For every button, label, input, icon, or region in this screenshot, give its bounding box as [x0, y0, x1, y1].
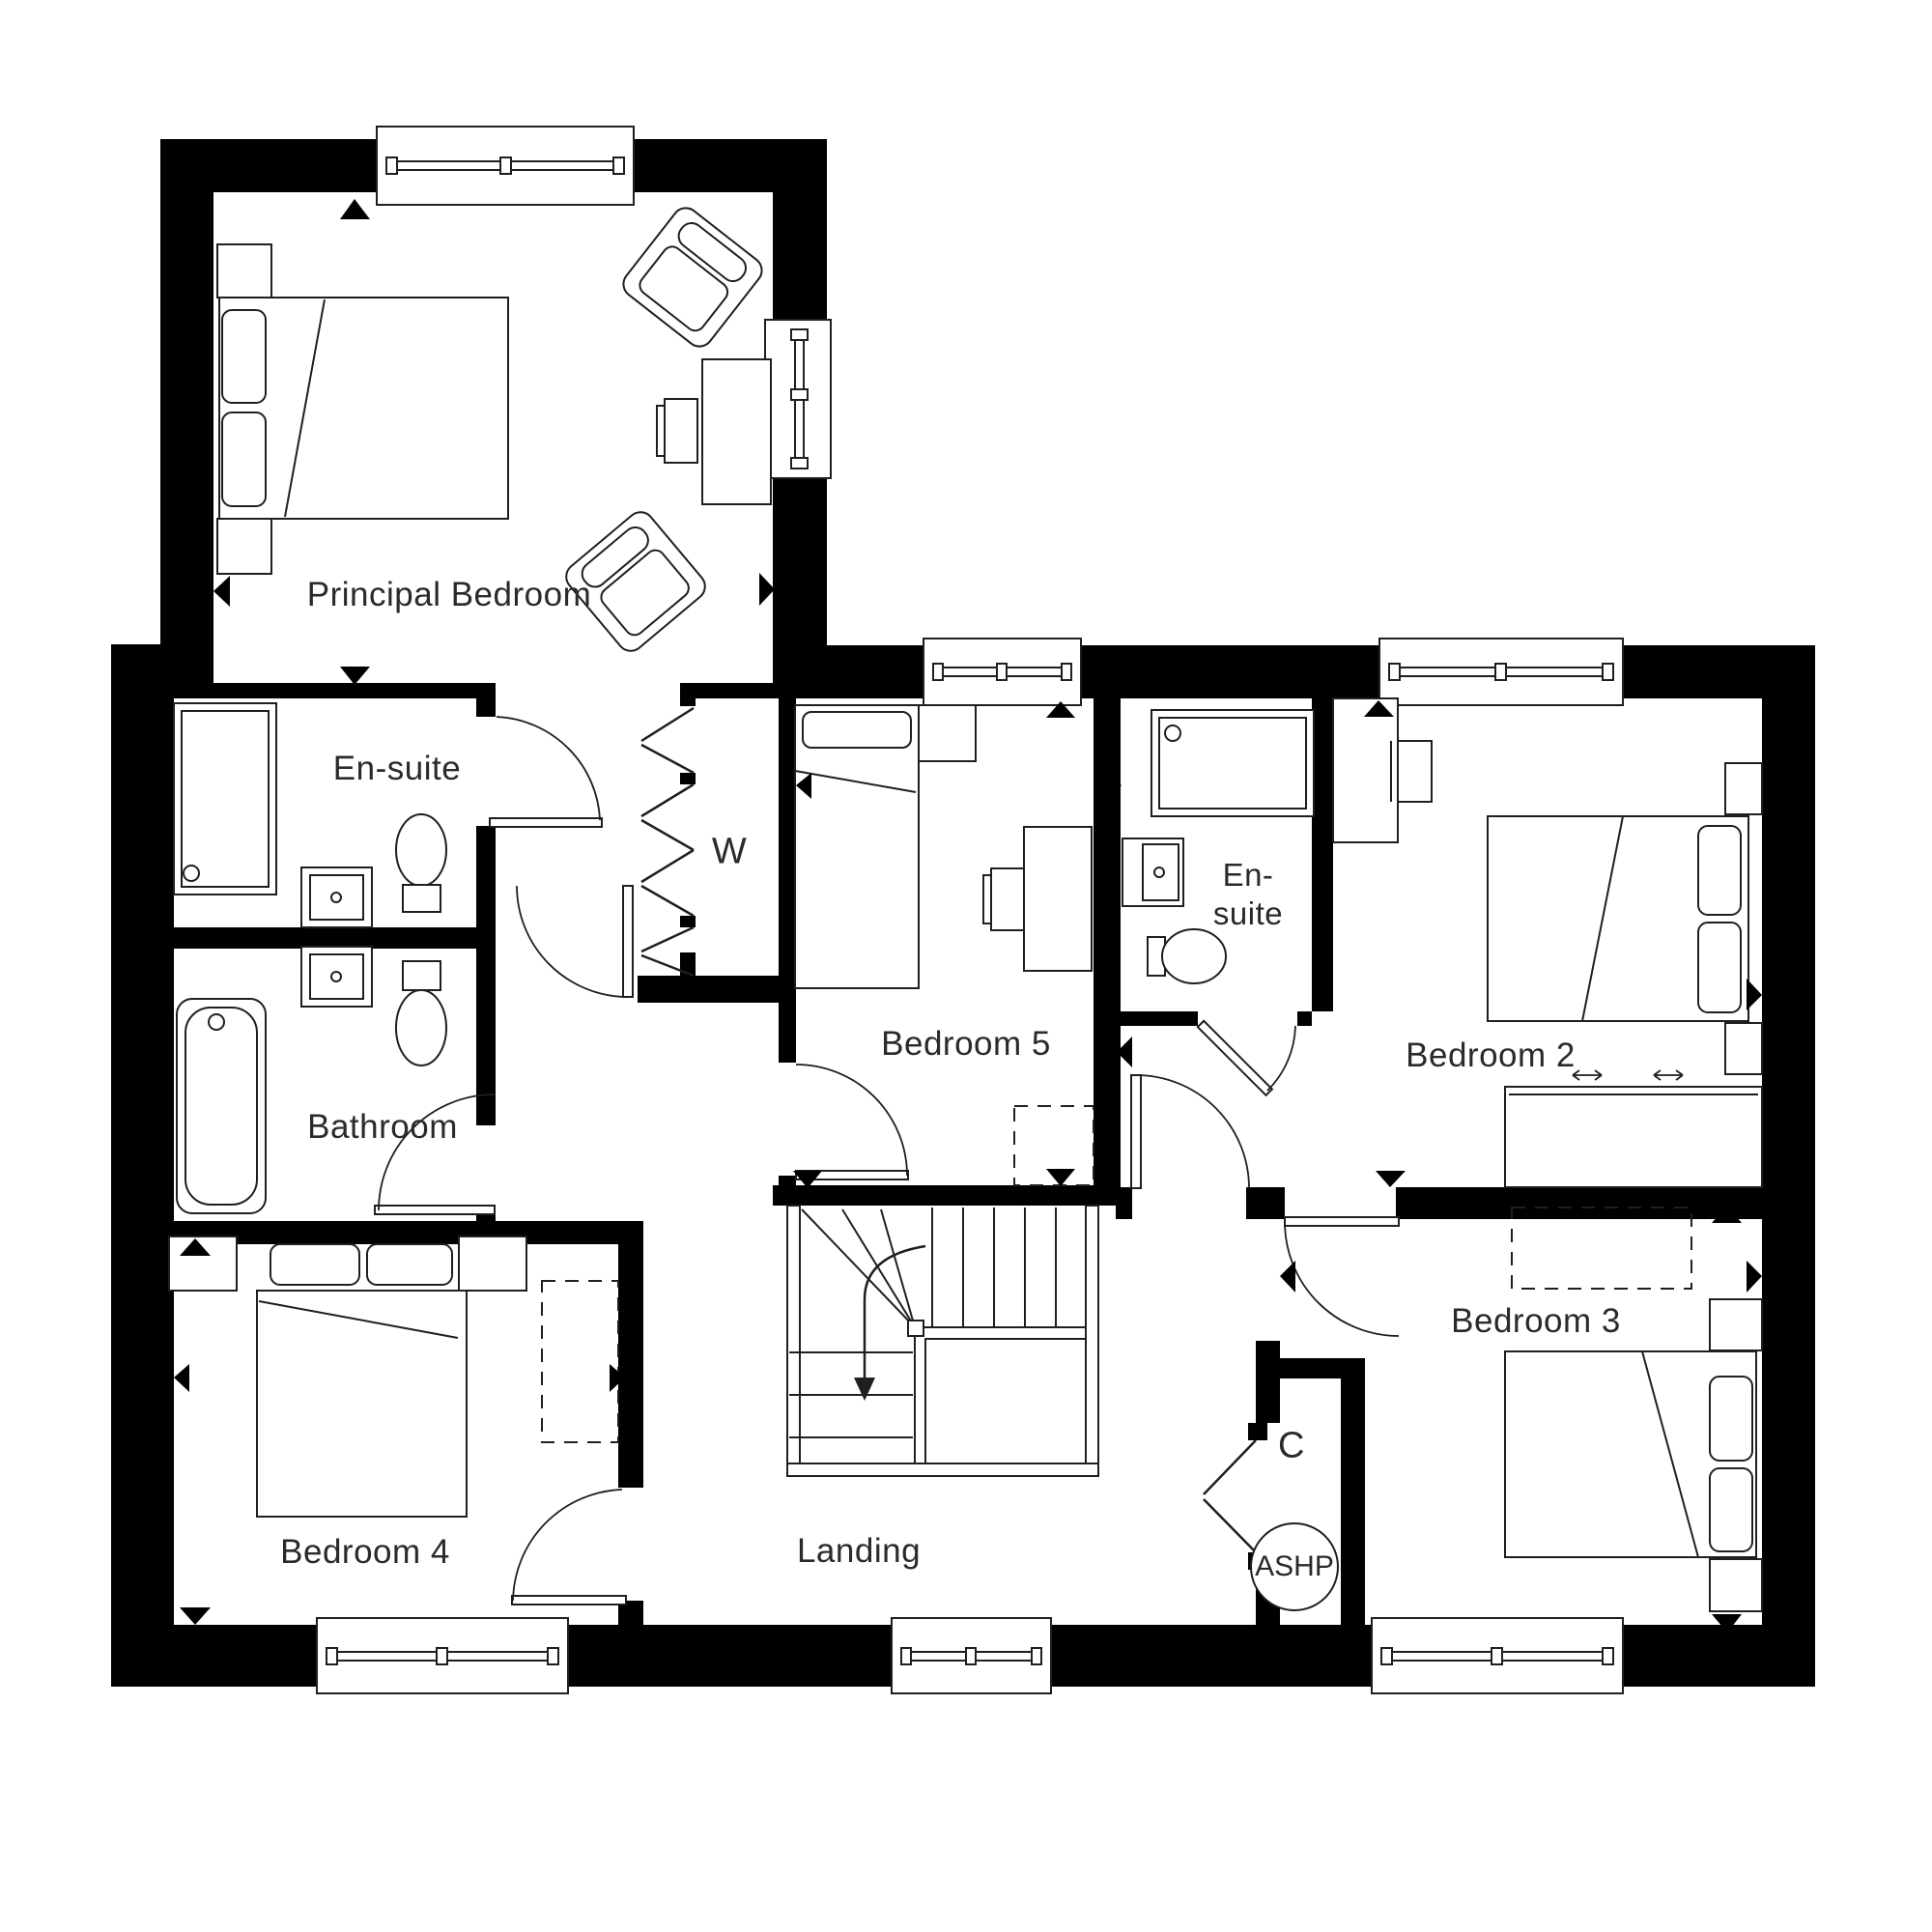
window-bedroom3 — [1372, 1618, 1623, 1693]
pillow — [367, 1244, 452, 1285]
bedside-unit — [169, 1236, 237, 1291]
label-ensuite2-line1: En- — [1223, 857, 1274, 894]
bedroom2-bed — [1488, 763, 1762, 1074]
label-bedroom5: Bedroom 5 — [881, 1025, 1051, 1064]
door-wardrobe-bifold — [641, 708, 694, 976]
bathroom-bath — [177, 999, 266, 1213]
bedside-unit — [1725, 1023, 1762, 1074]
window-bedroom2 — [1379, 639, 1623, 705]
toilet-bowl — [1162, 929, 1226, 983]
door-ensuite1 — [490, 717, 602, 827]
bedroom4-future-wardrobe — [542, 1281, 618, 1442]
sliding-door-arrows — [1573, 1070, 1683, 1080]
floor-plan-drawing — [0, 0, 1932, 1932]
marker-left — [174, 1364, 189, 1392]
mattress — [257, 1291, 467, 1517]
basin-tap — [331, 893, 341, 902]
window-principal-top — [377, 127, 634, 205]
shower-drain — [184, 866, 199, 881]
ensuite2-basin — [1122, 838, 1183, 906]
marker-up — [340, 199, 370, 219]
ensuite2-shower — [1151, 710, 1314, 816]
pillow — [1698, 826, 1741, 915]
door-cupboard-bifold — [1204, 1440, 1256, 1552]
bedside-unit — [217, 519, 271, 574]
marker-down — [340, 667, 370, 685]
bedroom3-future-wardrobe — [1512, 1207, 1691, 1289]
bedside-unit — [1725, 763, 1762, 814]
desk-chair — [991, 868, 1024, 930]
label-wardrobe: W — [712, 832, 747, 873]
window-landing — [892, 1618, 1051, 1693]
label-bathroom: Bathroom — [307, 1108, 458, 1147]
label-principal-bedroom: Principal Bedroom — [307, 576, 591, 614]
pillow — [1698, 923, 1741, 1012]
label-landing: Landing — [797, 1532, 921, 1571]
marker-right — [1747, 979, 1762, 1010]
label-bedroom4: Bedroom 4 — [280, 1533, 450, 1572]
window-bedroom4 — [317, 1618, 568, 1693]
label-ashp: ASHP — [1255, 1550, 1334, 1583]
label-bedroom3: Bedroom 3 — [1451, 1302, 1621, 1341]
bedroom4-bed — [169, 1236, 526, 1517]
bedroom5-bed — [795, 705, 976, 988]
ensuite2-toilet — [1148, 929, 1226, 983]
bedside-unit — [217, 244, 271, 298]
marker-down — [1046, 1169, 1075, 1186]
pillow — [222, 412, 266, 506]
principal-armchair-1 — [618, 203, 767, 352]
pillow — [1710, 1468, 1752, 1551]
label-bedroom2: Bedroom 2 — [1406, 1037, 1576, 1075]
bathroom-toilet — [396, 961, 446, 1065]
principal-bed — [217, 244, 508, 574]
desk-chair-back — [983, 875, 991, 923]
bedroom2-wardrobe — [1505, 1070, 1762, 1187]
floor-plan: Principal Bedroom En-suite W Bedroom 5 E… — [0, 0, 1932, 1932]
pillow — [270, 1244, 359, 1285]
bedroom2-desk — [1333, 698, 1432, 842]
marker-left — [1280, 1261, 1295, 1293]
marker-right — [759, 573, 775, 606]
window-bedroom5 — [923, 639, 1081, 705]
door-principal-suite — [517, 886, 633, 997]
pillow — [222, 310, 266, 403]
pillow — [1710, 1377, 1752, 1461]
door-bedroom2 — [1131, 1075, 1249, 1188]
label-cupboard: C — [1278, 1426, 1305, 1467]
door-bedroom4 — [512, 1490, 626, 1605]
ensuite1-basin — [301, 867, 372, 927]
desk-chair-back — [657, 406, 665, 456]
door-bedroom3 — [1285, 1217, 1399, 1336]
ensuite1-shower — [174, 703, 276, 895]
toilet-bowl — [396, 990, 446, 1065]
door-ensuite2 — [1198, 1021, 1295, 1095]
toilet-cistern — [403, 885, 440, 912]
bathroom-basin — [301, 947, 372, 1007]
bedside-unit — [1710, 1559, 1762, 1611]
stairs — [787, 1206, 1098, 1476]
principal-desk — [657, 359, 771, 504]
shower-drain — [1165, 725, 1180, 741]
bedside-unit — [459, 1236, 526, 1291]
bath-tap — [209, 1014, 224, 1030]
bedroom5-desk — [983, 827, 1092, 971]
toilet-cistern — [403, 961, 440, 990]
marker-down — [180, 1607, 211, 1625]
ensuite1-toilet — [396, 814, 446, 912]
toilet-bowl — [396, 814, 446, 886]
label-ensuite2-line2: suite — [1213, 895, 1283, 932]
label-ensuite1: En-suite — [333, 750, 461, 788]
bedroom3-bed — [1505, 1299, 1762, 1611]
marker-right — [1747, 1261, 1762, 1293]
pillow — [803, 712, 911, 748]
basin-tap — [331, 972, 341, 981]
marker-down — [1376, 1171, 1406, 1187]
desk-stool — [1398, 741, 1432, 802]
basin-tap — [1154, 867, 1164, 877]
desk-chair — [665, 399, 697, 463]
bedside-unit — [1710, 1299, 1762, 1350]
bedside-unit — [919, 705, 976, 761]
marker-left — [213, 576, 230, 607]
door-bedroom5 — [796, 1065, 908, 1179]
window-principal-side — [765, 320, 831, 478]
